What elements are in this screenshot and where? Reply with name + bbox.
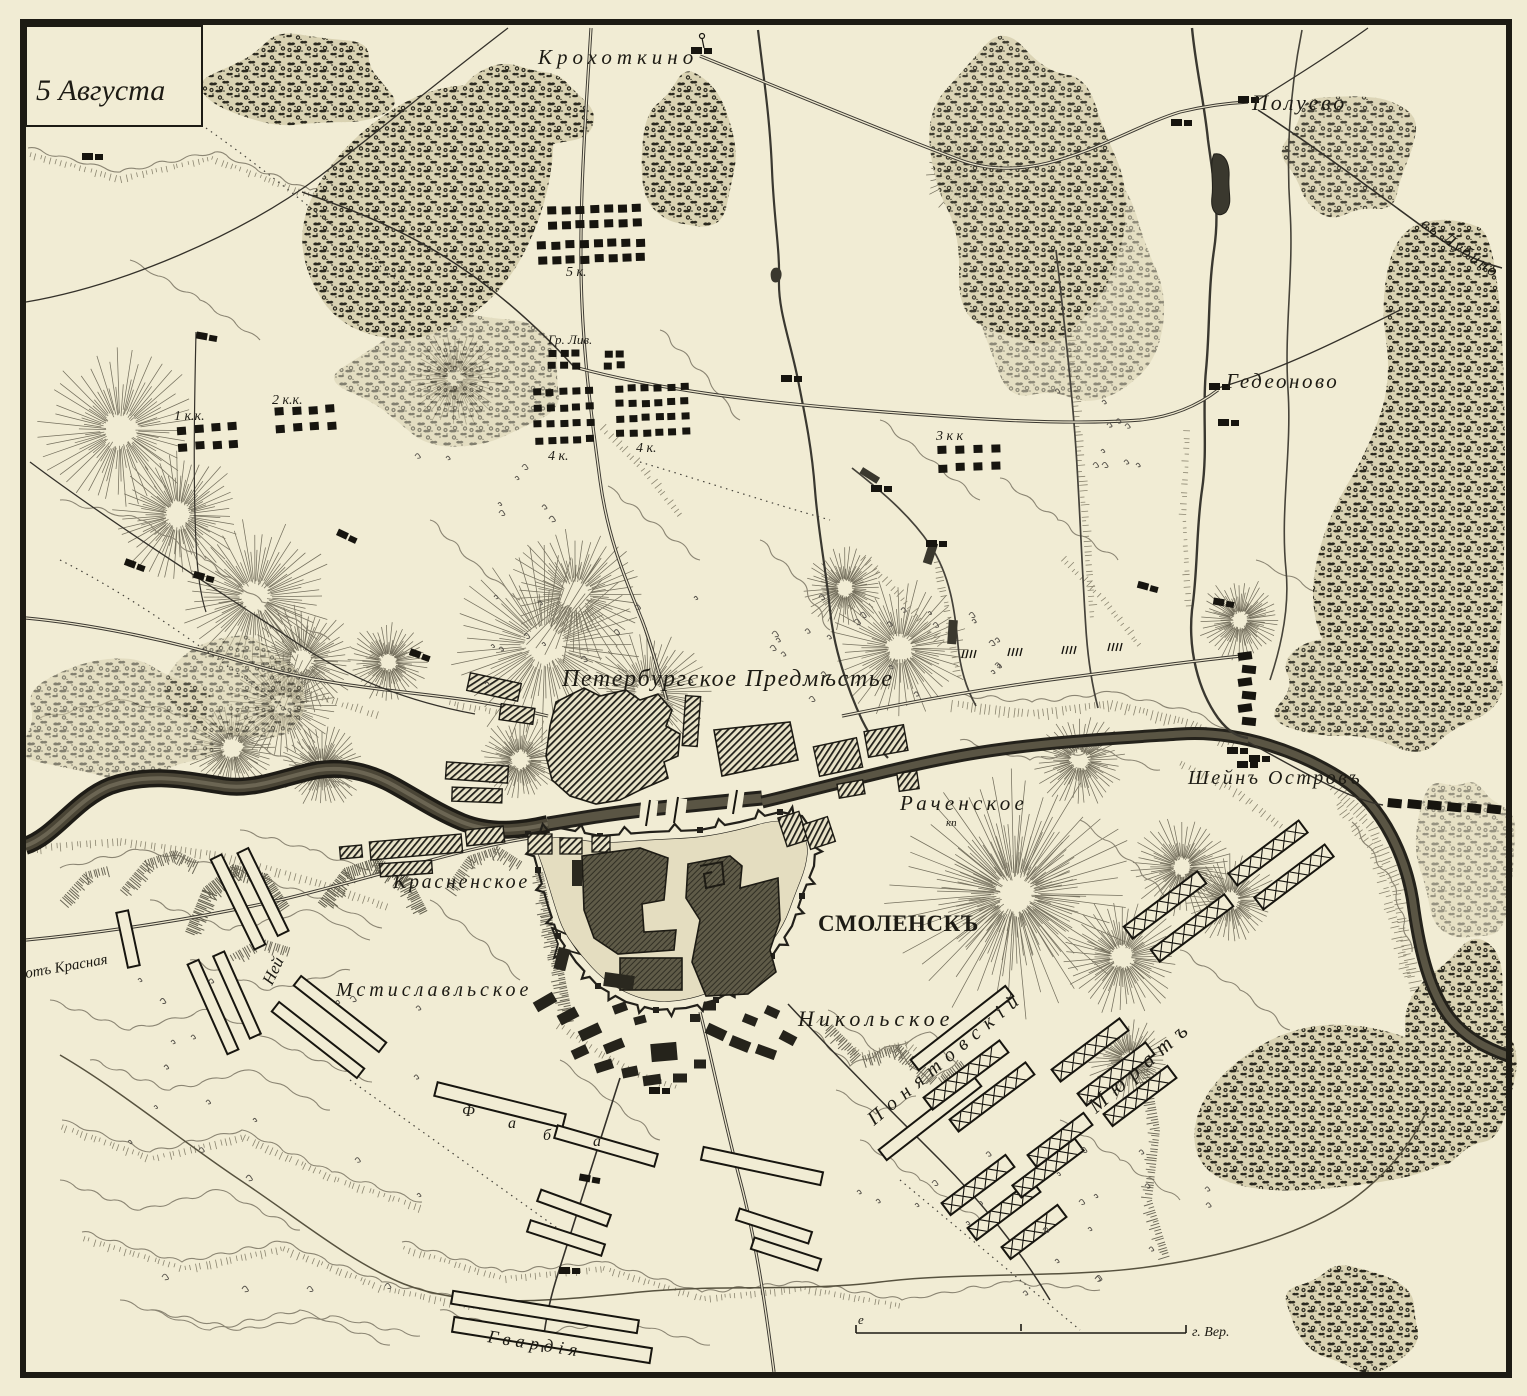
svg-text:Красненское: Красненское [392, 871, 530, 893]
svg-text:г. Вер.: г. Вер. [1192, 1325, 1230, 1340]
svg-text:а: а [508, 1115, 516, 1132]
svg-text:3 к к: 3 к к [935, 429, 964, 444]
svg-text:5 к.: 5 к. [566, 265, 587, 280]
svg-text:а: а [593, 1133, 601, 1150]
svg-text:Раченское: Раченское [899, 791, 1028, 815]
svg-text:2 к.к.: 2 к.к. [272, 393, 303, 408]
svg-text:Шейнъ Островъ: Шейнъ Островъ [1187, 767, 1362, 789]
svg-text:4 к.: 4 к. [548, 449, 569, 464]
svg-text:Мстиславльское: Мстиславльское [335, 979, 532, 1001]
svg-text:5 Августа: 5 Августа [36, 74, 165, 107]
svg-text:Гедеоново: Гедеоново [1225, 369, 1339, 393]
svg-text:б: б [543, 1127, 552, 1144]
svg-text:1 к.к.: 1 к.к. [174, 409, 205, 424]
svg-text:кп: кп [946, 817, 957, 829]
svg-text:Полуево: Полуево [1251, 90, 1347, 115]
svg-text:4 к.: 4 к. [636, 441, 657, 456]
svg-text:Гр. Лив.: Гр. Лив. [547, 332, 592, 347]
svg-text:Крохоткино: Крохоткино [537, 45, 698, 69]
svg-text:Никольское: Никольское [797, 1006, 954, 1031]
svg-text:Ф: Ф [462, 1103, 475, 1120]
svg-text:Петербургское Предмѣстье: Петербургское Предмѣстье [561, 666, 894, 692]
svg-text:СМОЛЕНСКЪ: СМОЛЕНСКЪ [818, 911, 979, 936]
svg-text:е: е [858, 1312, 864, 1327]
